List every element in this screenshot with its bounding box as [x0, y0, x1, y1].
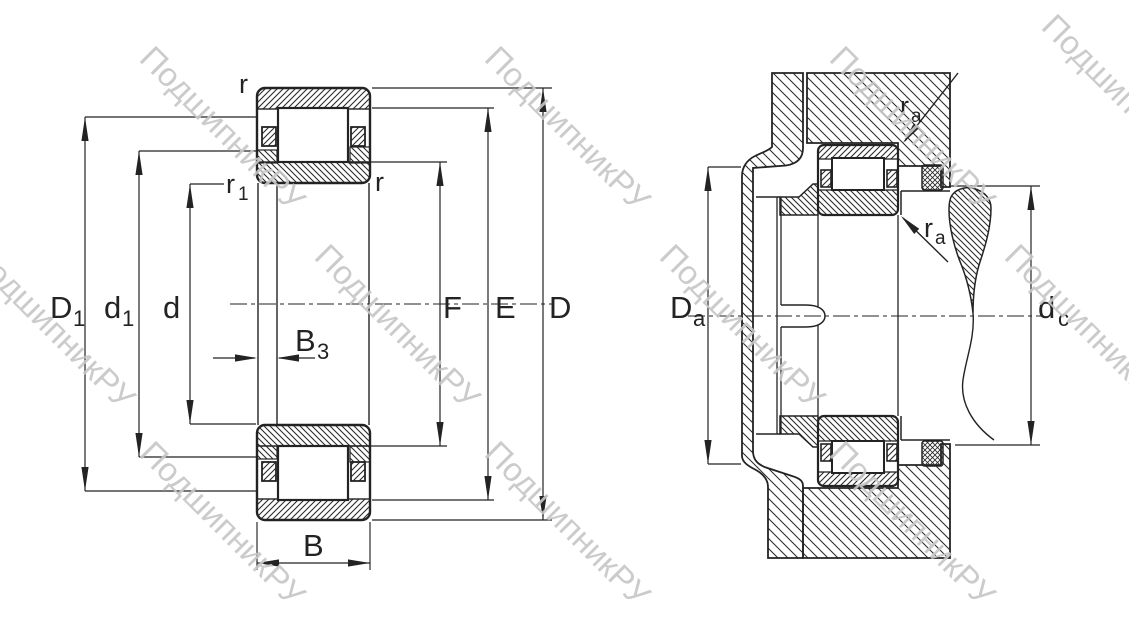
- watermark-text: ПодшипникРУ: [308, 237, 488, 417]
- dim-label-d1: d: [104, 290, 121, 325]
- dim-label-B3: B: [295, 323, 316, 358]
- cage-bar: [887, 170, 897, 187]
- dim-label-d: d: [163, 290, 180, 325]
- shaft-shoulder-top: [780, 184, 818, 215]
- dim-label-r1-sub: 1: [238, 184, 249, 205]
- roller-top: [278, 108, 348, 162]
- cage-bar-top-right: [351, 127, 365, 146]
- dim-label-d1-sub: 1: [122, 306, 134, 331]
- watermark-text: ПодшипникРУ: [1035, 7, 1129, 187]
- dim-label-B3-sub: 3: [317, 339, 329, 364]
- bearing-drawing-page: r r 1 r D 1 d 1 d B 3 B F E D: [0, 0, 1129, 632]
- bearing-technical-drawing: r r 1 r D 1 d 1 d B 3 B F E D: [0, 0, 1129, 632]
- cage-bar: [821, 170, 831, 187]
- inner-ring-rib-top: [350, 147, 370, 163]
- angle-ring-bottom: [257, 446, 277, 459]
- watermark-text: ПодшипникРУ: [478, 434, 658, 614]
- dim-label-r-inner: r: [375, 167, 384, 197]
- mounted-bearing-top: [818, 145, 898, 215]
- shaft-shoulder-bottom: [780, 416, 818, 447]
- cage-bar: [887, 444, 897, 461]
- outer-ring-bottom: [257, 499, 370, 520]
- dim-label-E: E: [495, 290, 516, 325]
- dim-label-ra-bot-sub: a: [935, 228, 946, 249]
- dim-label-r1: r: [226, 169, 235, 199]
- bearing-section-bottom: [257, 425, 370, 520]
- dim-label-r-top: r: [239, 69, 248, 99]
- dim-label-D: D: [549, 290, 571, 325]
- inner-ring-bottom: [257, 425, 370, 446]
- watermark-text: ПодшипникРУ: [478, 39, 658, 219]
- cage-bar-bottom-left: [262, 462, 276, 481]
- roller: [832, 158, 884, 190]
- roller-bottom: [278, 446, 348, 500]
- dim-label-B: B: [303, 528, 324, 563]
- cage-bar-bottom-right: [351, 462, 365, 481]
- dim-label-F: F: [443, 290, 462, 325]
- left-view-cross-section: r r 1 r D 1 d 1 d B 3 B F E D: [50, 69, 571, 570]
- dim-label-ra-bot: r: [924, 213, 933, 243]
- outer-ring-top: [257, 88, 370, 109]
- shaft-break-curve: [963, 313, 994, 440]
- locating-ring-bottom: [922, 441, 943, 466]
- watermark-text: ПодшипникРУ: [998, 237, 1129, 417]
- inner-ring-rib-bottom: [350, 446, 370, 462]
